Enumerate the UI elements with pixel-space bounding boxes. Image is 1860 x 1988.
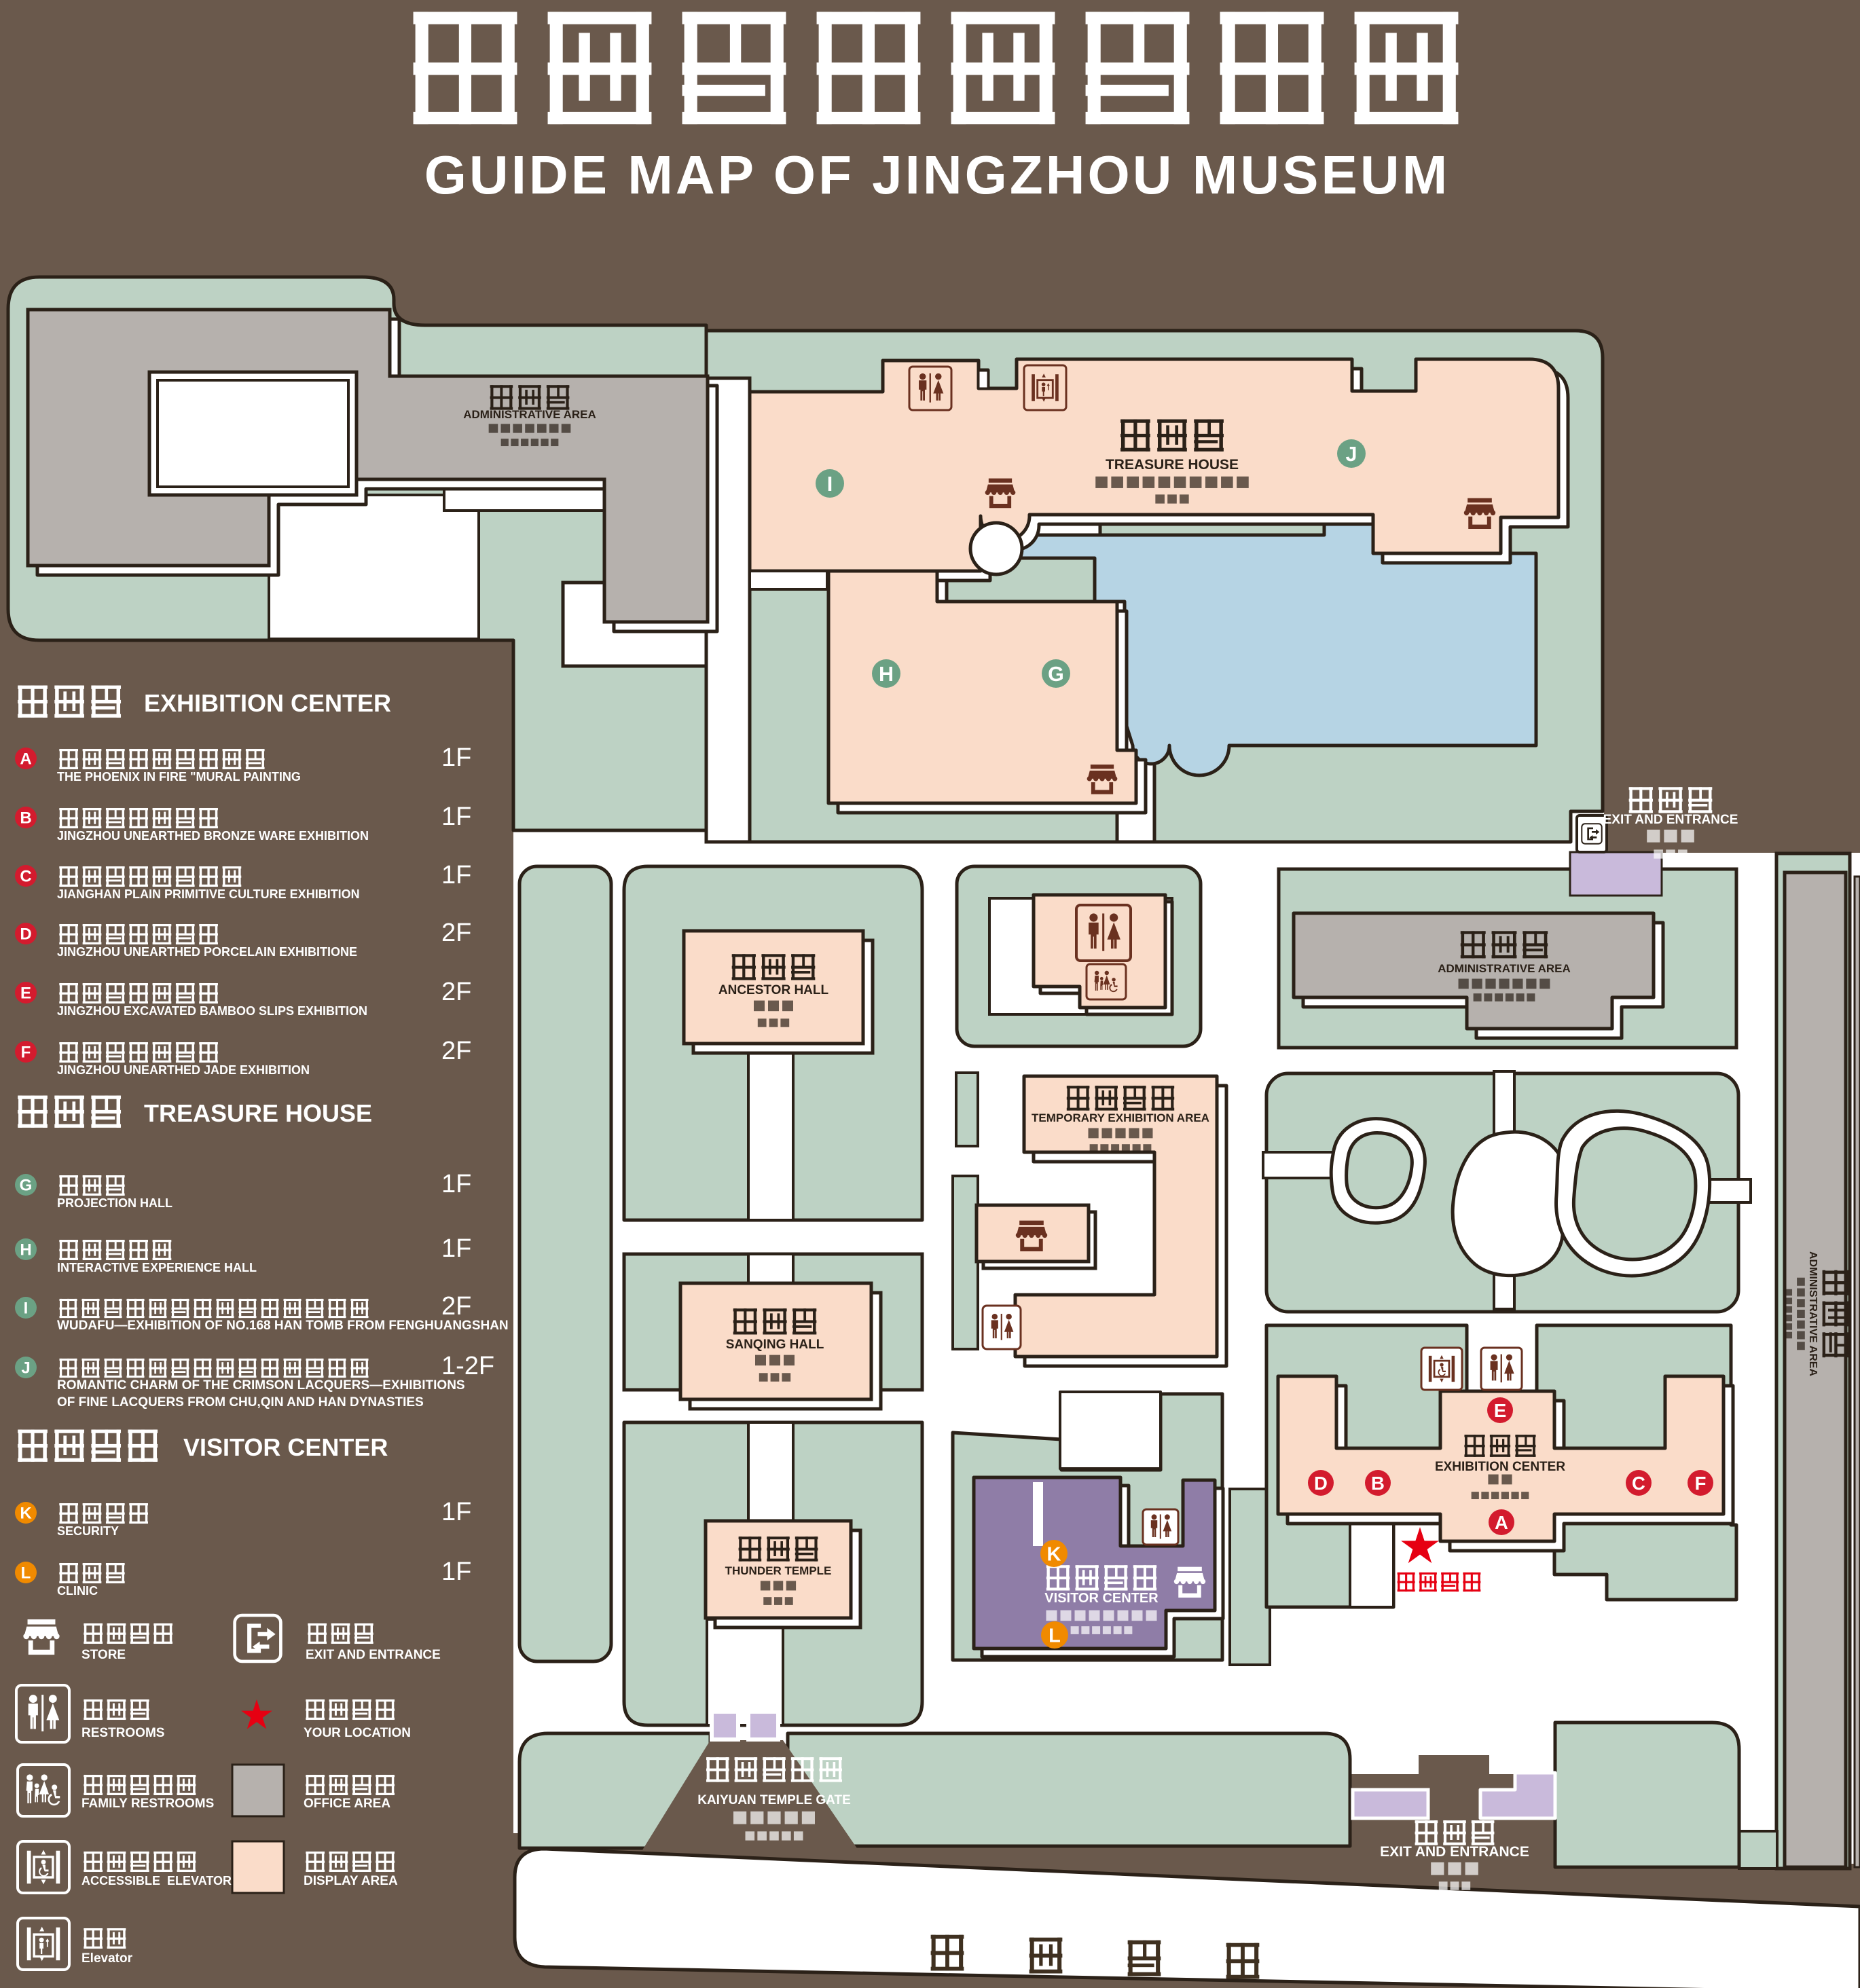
svg-text:F: F (21, 1044, 31, 1062)
svg-text:SECURITY: SECURITY (57, 1524, 119, 1538)
svg-text:2F: 2F (441, 1037, 471, 1065)
svg-text:ACCESSIBLE ELEVATOR: ACCESSIBLE ELEVATOR (81, 1874, 232, 1888)
svg-text:TEMPORARY EXHIBITION AREA: TEMPORARY EXHIBITION AREA (1032, 1111, 1209, 1124)
svg-text:C: C (20, 868, 31, 886)
svg-text:JINGZHOU UNEARTHED JADE EXHIBI: JINGZHOU UNEARTHED JADE EXHIBITION (57, 1063, 310, 1077)
svg-text:DISPLAY AREA: DISPLAY AREA (304, 1874, 398, 1888)
svg-text:ADMINISTRATIVE AREA: ADMINISTRATIVE AREA (1438, 962, 1571, 975)
svg-text:EXHIBITION CENTER: EXHIBITION CENTER (1435, 1460, 1565, 1474)
svg-text:E: E (20, 984, 31, 1003)
svg-text:1F: 1F (441, 803, 471, 831)
svg-text:ADMINISTRATIVE AREA: ADMINISTRATIVE AREA (1807, 1251, 1819, 1376)
svg-text:K: K (1047, 1543, 1061, 1565)
svg-text:EXHIBITION CENTER: EXHIBITION CENTER (144, 689, 391, 717)
svg-text:1F: 1F (441, 1234, 471, 1263)
svg-text:H: H (879, 663, 894, 686)
svg-text:1F: 1F (441, 1498, 471, 1526)
svg-text:L: L (1048, 1625, 1061, 1646)
svg-text:ADMINISTRATIVE AREA: ADMINISTRATIVE AREA (463, 408, 596, 421)
svg-text:ROMANTIC CHARM OF THE CRIMSON: ROMANTIC CHARM OF THE CRIMSON LACQUERS—E… (57, 1378, 465, 1393)
svg-text:B: B (1371, 1473, 1385, 1494)
svg-text:FAMILY RESTROOMS: FAMILY RESTROOMS (81, 1797, 214, 1811)
svg-text:VISITOR CENTER: VISITOR CENTER (183, 1433, 388, 1461)
svg-text:EXIT AND ENTRANCE: EXIT AND ENTRANCE (1603, 813, 1738, 827)
svg-text:KAIYUAN TEMPLE GATE: KAIYUAN TEMPLE GATE (697, 1793, 851, 1807)
svg-text:OFFICE AREA: OFFICE AREA (304, 1797, 390, 1811)
svg-text:CLINIC: CLINIC (57, 1584, 98, 1598)
svg-text:STORE: STORE (81, 1648, 126, 1662)
svg-text:TREASURE HOUSE: TREASURE HOUSE (144, 1099, 372, 1127)
svg-text:B: B (20, 809, 31, 828)
svg-text:D: D (20, 925, 31, 944)
svg-text:SANQING HALL: SANQING HALL (726, 1338, 824, 1352)
svg-text:F: F (1695, 1473, 1707, 1494)
svg-text:JINGZHOU UNEARTHED BRONZE WARE: JINGZHOU UNEARTHED BRONZE WARE EXHIBITIO… (57, 829, 369, 843)
svg-text:THE PHOENIX IN FIRE "MURAL PAI: THE PHOENIX IN FIRE "MURAL PAINTING (57, 770, 301, 784)
svg-text:EXIT AND ENTRANCE: EXIT AND ENTRANCE (1380, 1844, 1529, 1860)
svg-text:2F: 2F (441, 919, 471, 947)
svg-text:1F: 1F (441, 1558, 471, 1586)
svg-text:J: J (1346, 443, 1357, 466)
svg-text:INTERACTIVE EXPERIENCE HALL: INTERACTIVE EXPERIENCE HALL (57, 1261, 257, 1274)
svg-text:1F: 1F (441, 743, 471, 772)
svg-text:I: I (827, 473, 833, 496)
svg-text:D: D (1314, 1473, 1328, 1494)
svg-text:RESTROOMS: RESTROOMS (81, 1726, 164, 1740)
svg-text:K: K (20, 1505, 32, 1523)
svg-text:WUDAFU—EXHIBITION OF NO.168 HA: WUDAFU—EXHIBITION OF NO.168 HAN TOMB FRO… (57, 1319, 509, 1333)
svg-text:2F: 2F (441, 1292, 471, 1321)
svg-text:Elevator: Elevator (81, 1951, 133, 1966)
svg-text:J: J (21, 1359, 30, 1378)
svg-text:JINGZHOU UNEARTHED PORCELAIN E: JINGZHOU UNEARTHED PORCELAIN EXHIBITIONE (57, 945, 357, 959)
svg-text:1F: 1F (441, 1170, 471, 1198)
svg-text:PROJECTION HALL: PROJECTION HALL (57, 1196, 172, 1210)
svg-text:G: G (1048, 663, 1064, 686)
svg-text:THUNDER TEMPLE: THUNDER TEMPLE (725, 1564, 832, 1577)
svg-text:TREASURE HOUSE: TREASURE HOUSE (1106, 457, 1239, 473)
svg-text:E: E (1494, 1400, 1506, 1421)
svg-text:JINGZHOU EXCAVATED BAMBOO SLIP: JINGZHOU EXCAVATED BAMBOO SLIPS EXHIBITI… (57, 1004, 367, 1018)
svg-text:JIANGHAN PLAIN PRIMITIVE CULTU: JIANGHAN PLAIN PRIMITIVE CULTURE EXHIBIT… (57, 887, 360, 901)
svg-text:C: C (1632, 1473, 1645, 1494)
svg-text:EXIT AND ENTRANCE: EXIT AND ENTRANCE (306, 1648, 441, 1662)
svg-text:H: H (20, 1241, 31, 1259)
svg-text:2F: 2F (441, 978, 471, 1006)
svg-text:A: A (1495, 1512, 1508, 1533)
svg-text:A: A (20, 750, 31, 769)
svg-text:1F: 1F (441, 861, 471, 889)
svg-text:1-2F: 1-2F (441, 1352, 494, 1380)
svg-text:YOUR LOCATION: YOUR LOCATION (304, 1726, 411, 1740)
svg-text:I: I (24, 1300, 29, 1318)
svg-text:L: L (21, 1564, 31, 1583)
svg-text:G: G (20, 1177, 33, 1195)
svg-text:VISITOR CENTER: VISITOR CENTER (1044, 1591, 1159, 1606)
svg-text:GUIDE MAP OF JINGZHOU MUSEUM: GUIDE MAP OF JINGZHOU MUSEUM (424, 145, 1451, 205)
svg-text:ANCESTOR HALL: ANCESTOR HALL (718, 983, 829, 997)
svg-text:OF FINE LACQUERS FROM CHU,QIN: OF FINE LACQUERS FROM CHU,QIN AND HAN DY… (57, 1395, 424, 1410)
